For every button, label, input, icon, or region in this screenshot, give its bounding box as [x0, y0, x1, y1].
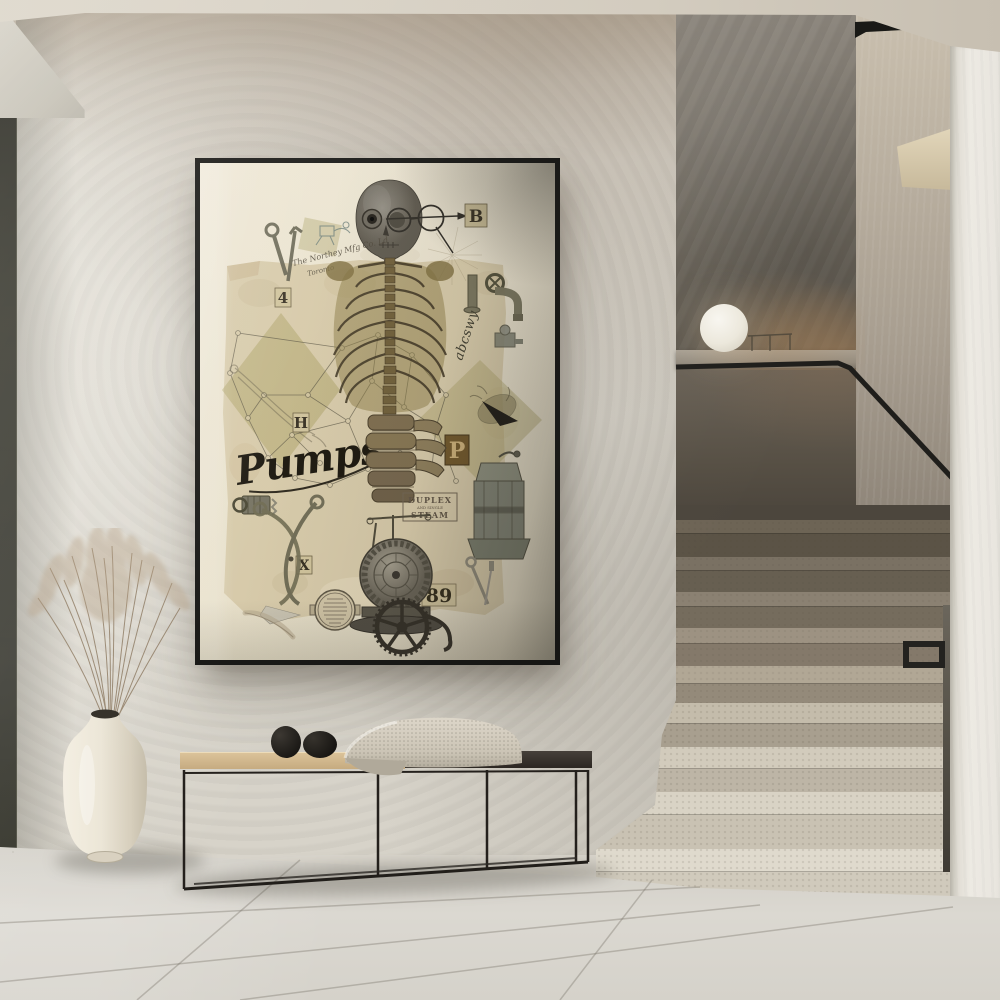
hand-illustration [470, 386, 521, 429]
handrail-end-bracket [903, 641, 945, 668]
bench-metal-frame [175, 765, 605, 900]
spine [383, 258, 396, 414]
motor-part-illustration [234, 496, 277, 515]
framed-poster: The Northey Mfg Co. Ld Toronto [195, 158, 560, 665]
tile-4: 4 [278, 289, 288, 307]
pampas-grass [20, 528, 195, 728]
handrail [676, 363, 953, 479]
tile-p: P [449, 438, 466, 464]
blade-illustration [260, 606, 300, 624]
stamp-line3: STEAM [411, 510, 449, 520]
poster-artwork: The Northey Mfg Co. Ld Toronto [200, 163, 555, 660]
poster-glass: The Northey Mfg Co. Ld Toronto [200, 163, 555, 660]
feather-illustration [245, 613, 293, 637]
machinery-sketch [316, 222, 350, 245]
arrow-icon [482, 401, 518, 426]
tile-89: 89 [426, 585, 452, 607]
aged-paper-sheet [223, 245, 520, 619]
handwritten-alphabet: abcswy [452, 308, 482, 362]
arm-sketch [230, 365, 326, 447]
landing-rail [748, 334, 792, 351]
tile-b: B [469, 207, 483, 227]
tile-h: H [294, 414, 308, 432]
skull-illustration [356, 180, 466, 269]
knit-blanket [335, 708, 535, 783]
forceps-illustration [254, 496, 323, 604]
letter-tiles: B 4 H X P 89 [275, 204, 487, 607]
vertebrae-illustration [366, 415, 446, 502]
spectacles-icon [386, 206, 466, 254]
svg-text:Pumps: Pumps [231, 425, 385, 495]
faucet-illustration [464, 275, 523, 322]
duplex-steam-stamp: DUPLEX AND SINGLE STEAM [403, 493, 457, 521]
stamp-line2: AND SINGLE [416, 505, 443, 510]
city-text: Toronto [307, 264, 336, 278]
medallion-illustration [310, 590, 360, 630]
ceramic-vase [55, 705, 165, 870]
network-diagram [228, 331, 459, 488]
grinder-machine-illustration [468, 451, 530, 559]
khaki-collage-shapes [222, 217, 542, 482]
starburst-sketch [426, 227, 482, 285]
wrench-icon [266, 224, 302, 281]
valve-part-illustration [495, 325, 523, 347]
handwritten-maker: The Northey Mfg Co. Ld Toronto [291, 235, 389, 278]
ribcage-illustration [326, 258, 454, 414]
maker-text: The Northey Mfg Co. Ld [291, 235, 389, 268]
stamp-line1: DUPLEX [408, 495, 452, 505]
small-tools-illustration [467, 558, 495, 606]
decor-stone [303, 731, 337, 758]
tile-x: X [299, 558, 310, 574]
interior-hallway-scene: The Northey Mfg Co. Ld Toronto [0, 0, 1000, 1000]
pumps-title: Pumps [231, 425, 386, 498]
steam-pump-illustration [344, 514, 450, 655]
